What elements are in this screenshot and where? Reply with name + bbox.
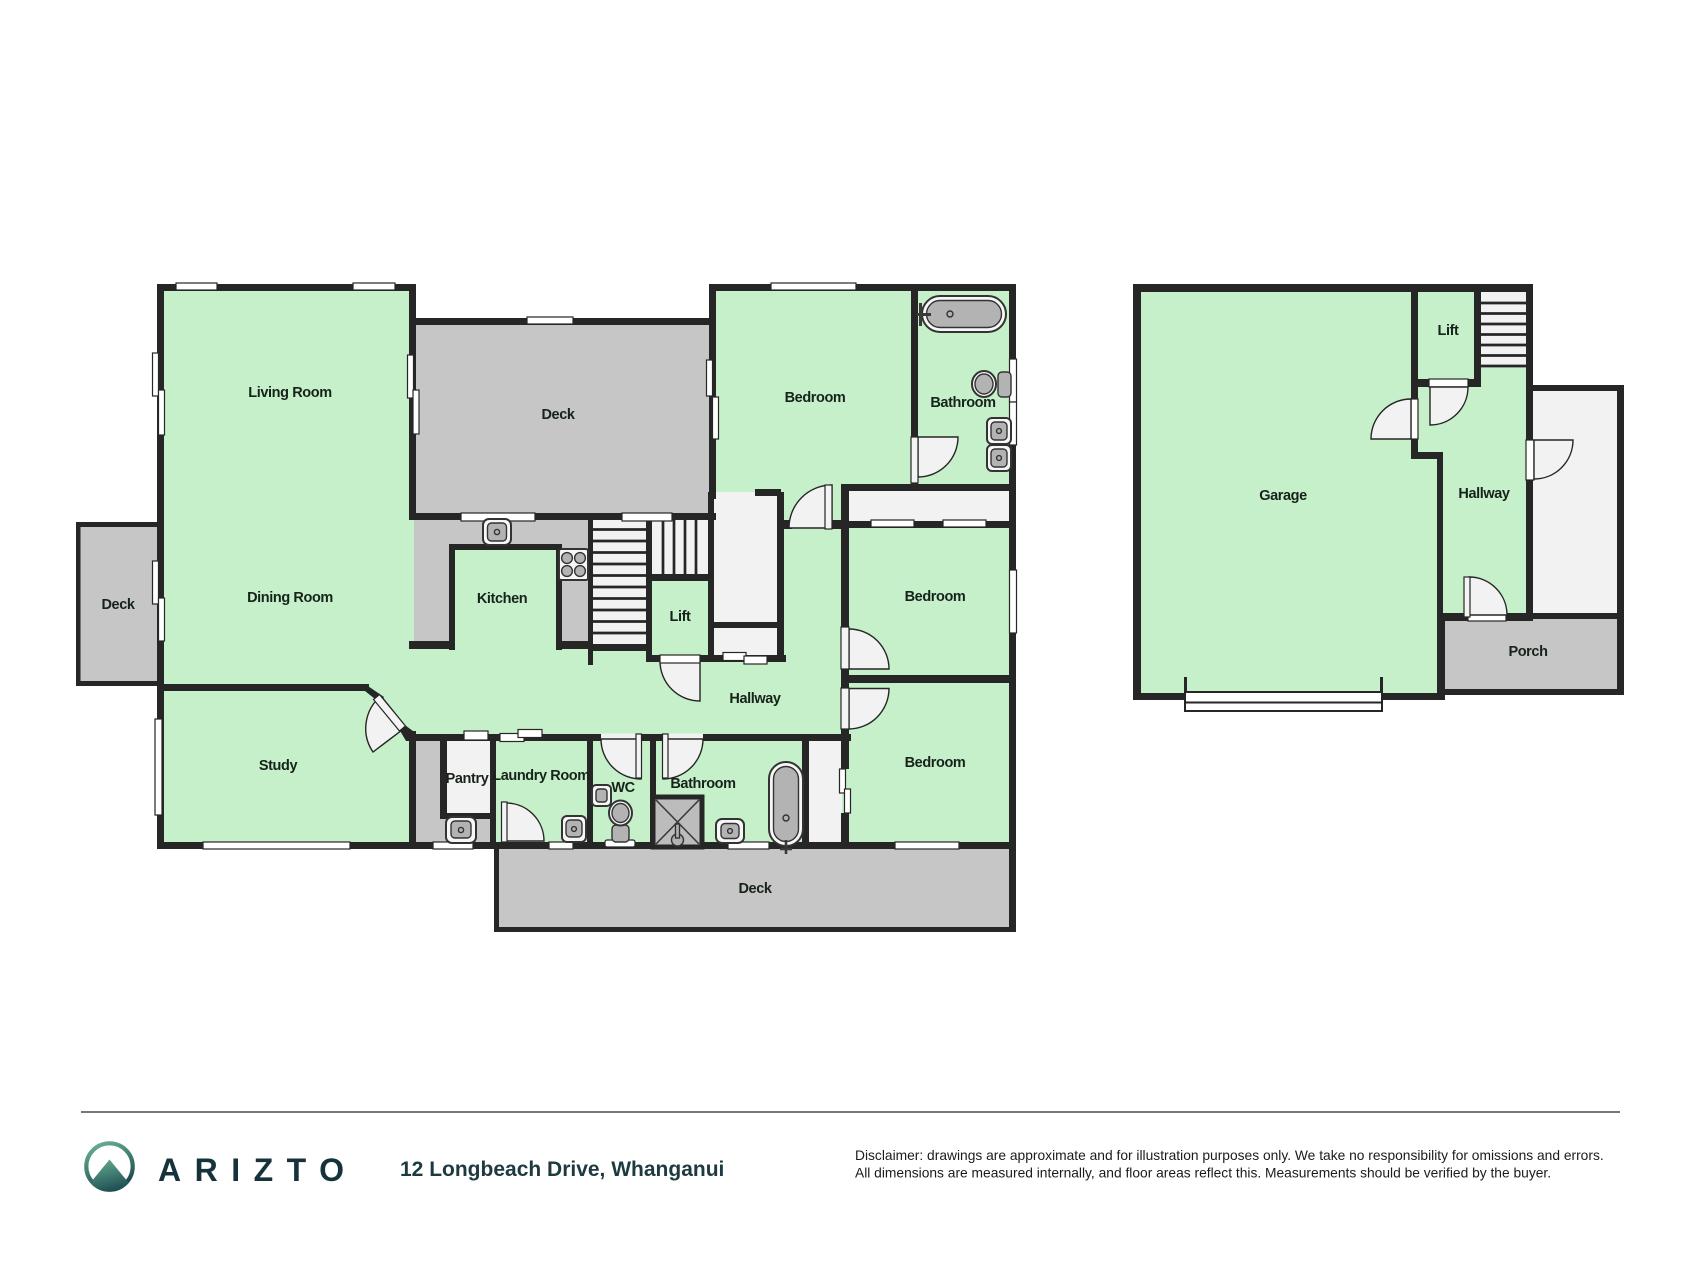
svg-text:12 Longbeach Drive, Whanganui: 12 Longbeach Drive, Whanganui (400, 1158, 724, 1181)
svg-text:Kitchen: Kitchen (477, 591, 527, 607)
svg-text:Dining Room: Dining Room (247, 590, 333, 606)
svg-text:Bedroom: Bedroom (785, 390, 846, 406)
svg-text:Laundry Room: Laundry Room (492, 768, 590, 784)
svg-text:Bathroom: Bathroom (670, 776, 735, 792)
svg-text:Lift: Lift (670, 609, 692, 625)
svg-text:Disclaimer: drawings are appro: Disclaimer: drawings are approximate and… (855, 1148, 1604, 1163)
svg-text:Garage: Garage (1259, 488, 1307, 504)
svg-text:Bedroom: Bedroom (905, 755, 966, 771)
svg-text:Pantry: Pantry (446, 771, 489, 787)
svg-text:WC: WC (611, 780, 635, 796)
svg-text:All dimensions are measured in: All dimensions are measured internally, … (855, 1166, 1551, 1181)
svg-text:Living Room: Living Room (248, 385, 331, 401)
svg-text:Deck: Deck (541, 407, 575, 423)
svg-text:Bathroom: Bathroom (930, 395, 995, 411)
svg-text:ARIZTO: ARIZTO (158, 1152, 358, 1188)
svg-text:Hallway: Hallway (1458, 486, 1510, 502)
svg-text:Deck: Deck (738, 881, 772, 897)
svg-text:Bedroom: Bedroom (905, 589, 966, 605)
svg-text:Study: Study (259, 758, 298, 774)
svg-text:Hallway: Hallway (729, 691, 781, 707)
svg-text:Lift: Lift (1438, 323, 1460, 339)
svg-text:Deck: Deck (101, 597, 135, 613)
svg-text:Porch: Porch (1508, 644, 1547, 660)
